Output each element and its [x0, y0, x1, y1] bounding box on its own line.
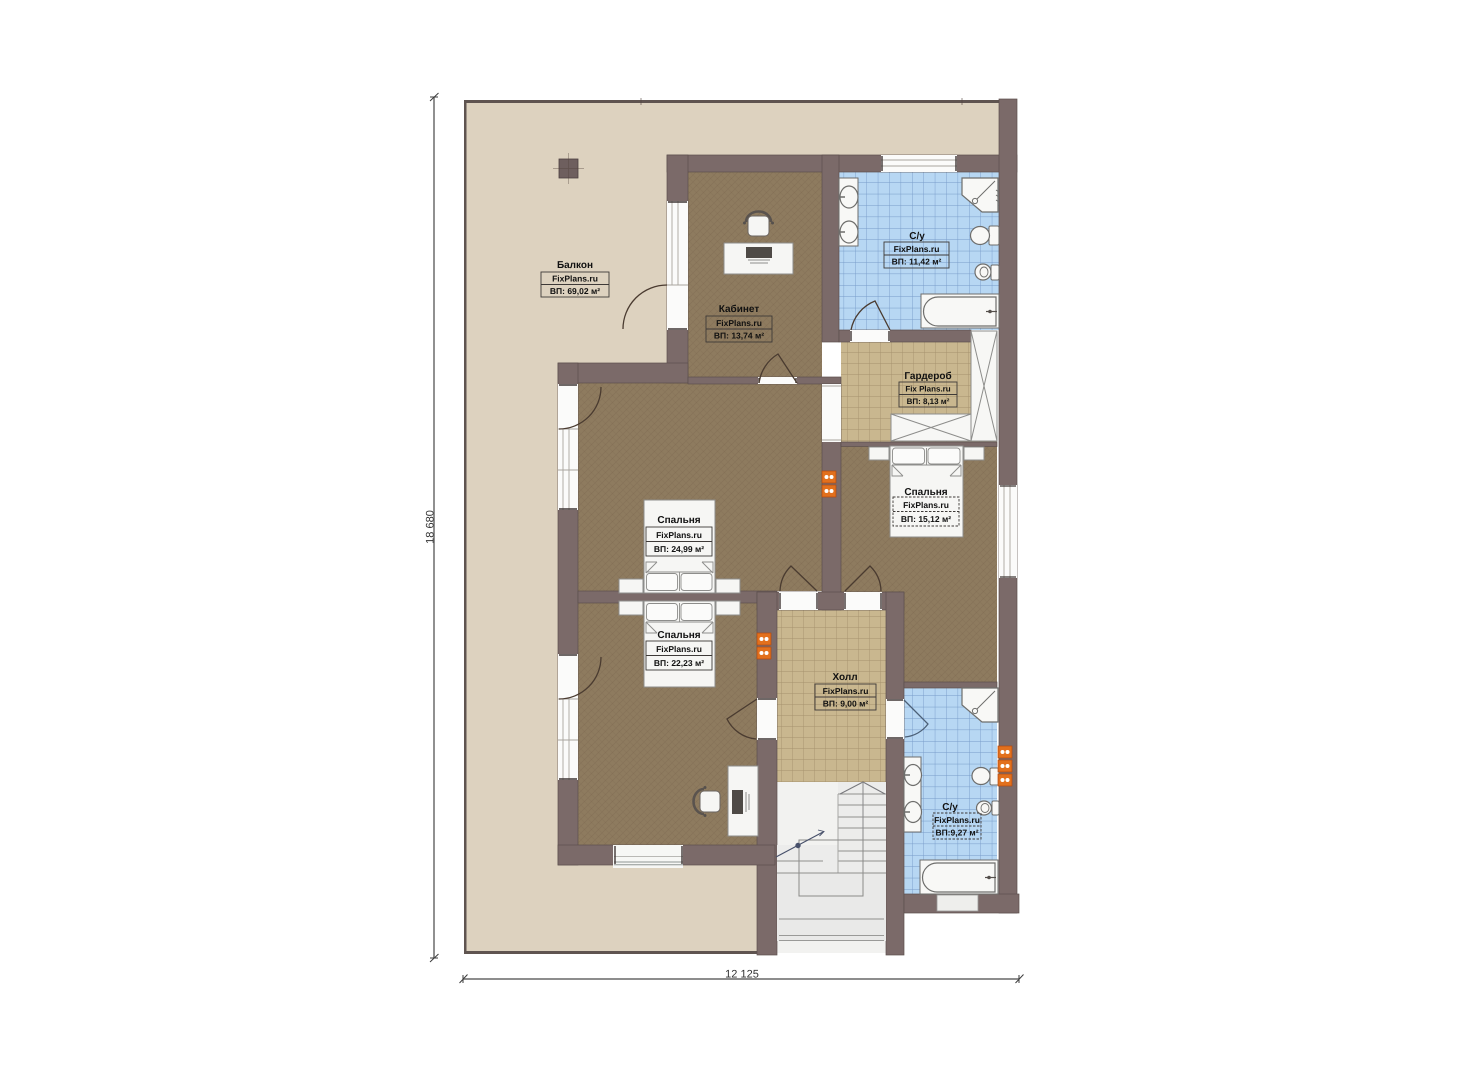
svg-text:FixPlans.ru: FixPlans.ru: [823, 686, 869, 696]
svg-text:FixPlans.ru: FixPlans.ru: [934, 815, 980, 825]
svg-text:Fix Plans.ru: Fix Plans.ru: [905, 385, 950, 394]
svg-text:Балкон: Балкон: [557, 260, 593, 271]
svg-text:ВП: 8,13 м²: ВП: 8,13 м²: [907, 397, 950, 406]
svg-text:ВП: 69,02 м²: ВП: 69,02 м²: [550, 286, 600, 296]
svg-text:Спальня: Спальня: [904, 487, 947, 498]
svg-text:ВП: 13,74 м²: ВП: 13,74 м²: [714, 331, 764, 341]
svg-text:ВП:9,27 м²: ВП:9,27 м²: [935, 828, 978, 838]
svg-text:С/у: С/у: [909, 231, 925, 242]
svg-text:ВП: 11,42 м²: ВП: 11,42 м²: [892, 257, 942, 267]
svg-text:ВП: 9,00 м²: ВП: 9,00 м²: [823, 699, 869, 709]
svg-text:Спальня: Спальня: [657, 515, 700, 526]
svg-text:FixPlans.ru: FixPlans.ru: [903, 500, 949, 510]
svg-text:FixPlans.ru: FixPlans.ru: [552, 274, 598, 284]
svg-text:FixPlans.ru: FixPlans.ru: [656, 530, 702, 540]
svg-text:Холл: Холл: [832, 672, 857, 683]
svg-text:12 125: 12 125: [725, 969, 759, 981]
svg-text:FixPlans.ru: FixPlans.ru: [894, 244, 940, 254]
svg-text:Кабинет: Кабинет: [719, 304, 760, 315]
svg-text:ВП: 24,99 м²: ВП: 24,99 м²: [654, 544, 704, 554]
svg-text:18 680: 18 680: [425, 510, 437, 544]
svg-text:С/у: С/у: [942, 802, 958, 813]
svg-text:Гардероб: Гардероб: [904, 371, 951, 382]
svg-text:FixPlans.ru: FixPlans.ru: [656, 644, 702, 654]
svg-text:Спальня: Спальня: [657, 630, 700, 641]
svg-text:ВП: 15,12 м²: ВП: 15,12 м²: [901, 514, 951, 524]
svg-text:ВП: 22,23 м²: ВП: 22,23 м²: [654, 658, 704, 668]
svg-text:FixPlans.ru: FixPlans.ru: [716, 318, 762, 328]
